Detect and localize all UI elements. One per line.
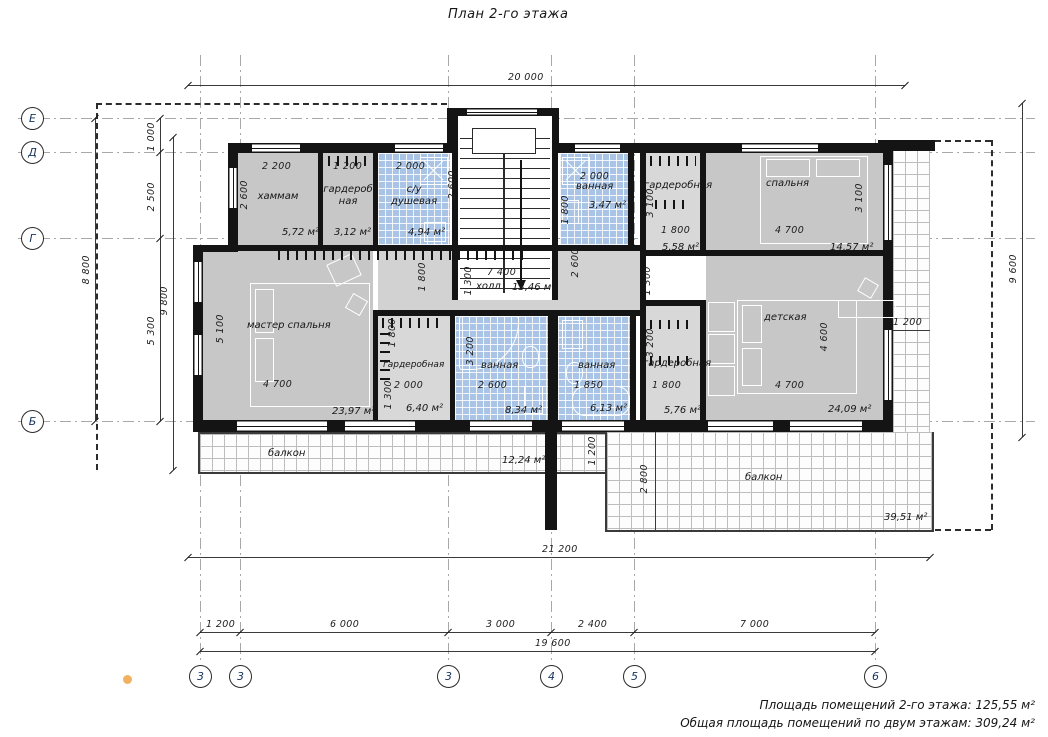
summary-floor2: Площадь помещений 2-го этажа: 125,55 м² — [680, 696, 1035, 714]
overhang-outline — [96, 103, 98, 470]
wall — [552, 112, 558, 300]
room-label: балкон — [268, 448, 305, 460]
wardrobe-rail — [650, 156, 696, 166]
pillow — [742, 348, 762, 386]
dimension-line — [893, 330, 930, 331]
axis-bubble-bottom: 6 — [864, 665, 887, 688]
cabinet — [708, 366, 735, 396]
window — [193, 262, 203, 302]
room-label: ванная — [576, 181, 613, 193]
room-area: 39,51 м² — [884, 513, 927, 523]
room-area: 8,34 м² — [505, 406, 542, 416]
window — [883, 330, 893, 400]
wall — [452, 112, 458, 300]
dimension-line — [173, 137, 174, 470]
room-label: гардеробная — [643, 358, 711, 370]
dim-label: 2 000 — [580, 172, 609, 182]
dimension-line — [200, 651, 875, 652]
dim-label: 9 600 — [1009, 254, 1019, 283]
room-area: 24,09 м² — [828, 405, 871, 415]
axis-bubble-left: Е — [21, 107, 44, 130]
dim-label: 20 000 — [508, 73, 544, 83]
dim-label: 9 800 — [160, 286, 170, 315]
axis-bubble-bottom: 5 — [623, 665, 646, 688]
dim-label: 2 200 — [262, 162, 291, 172]
summary-total: Общая площадь помещений по двум этажам: … — [680, 714, 1035, 732]
axis-bubble-left: Г — [21, 227, 44, 250]
overhang-outline — [935, 140, 991, 142]
dim-label: 3 100 — [646, 188, 656, 217]
wall — [640, 300, 706, 306]
dim-label: 1 300 — [643, 266, 653, 295]
window — [395, 143, 443, 153]
dim-label: 7 000 — [740, 620, 769, 630]
area-summary: Площадь помещений 2-го этажа: 125,55 м² … — [680, 696, 1035, 732]
room-area: 6,13 м² — [590, 404, 627, 414]
dim-label: 1 800 — [652, 381, 681, 391]
terrace-strip-right — [893, 150, 930, 432]
wall — [450, 310, 455, 422]
wall — [630, 310, 636, 422]
axis-bubble-left: Б — [21, 410, 44, 433]
dim-label: 2 600 — [571, 248, 581, 277]
axis-bubble-bottom: 3 — [437, 665, 460, 688]
dim-label: 2 600 — [448, 170, 458, 199]
wall — [700, 150, 706, 256]
dim-label: 7 400 — [487, 268, 516, 278]
cabinet — [708, 302, 735, 332]
dim-label: 1 200 — [206, 620, 235, 630]
stair-arrow-line — [520, 160, 522, 280]
room-label: гардероб ная — [322, 184, 374, 207]
wardrobe-rail — [650, 320, 692, 329]
room-area: 12,24 м² — [502, 456, 545, 466]
dim-label: 4 700 — [263, 380, 292, 390]
dim-label: 2 000 — [396, 162, 425, 172]
dim-label: 3 000 — [486, 620, 515, 630]
dim-label: 2 400 — [578, 620, 607, 630]
room-area: 5,72 м² — [282, 228, 319, 238]
room-label: холл — [476, 281, 501, 293]
room-area: 5,58 м² — [662, 243, 699, 253]
wall — [545, 430, 557, 530]
toilet — [522, 346, 539, 368]
wardrobe-rail — [655, 200, 689, 209]
room-label: спальня — [766, 178, 809, 190]
dimension-line — [605, 434, 606, 468]
wall — [628, 153, 634, 250]
room-label: хаммам — [250, 191, 306, 203]
dimension-line — [1022, 103, 1023, 437]
dimension-line — [95, 118, 96, 421]
dim-label: 2 800 — [640, 464, 650, 493]
room-label: балкон — [745, 472, 782, 484]
stair-landing — [472, 128, 536, 154]
floor-plan-canvas: План 2-го этажа — [0, 0, 1048, 737]
window — [742, 143, 818, 153]
window — [883, 165, 893, 240]
dim-label: 1 300 — [464, 266, 474, 295]
wall — [548, 310, 558, 422]
dimension-line — [200, 632, 875, 633]
axis-bubble-bottom: 4 — [540, 665, 563, 688]
room-label: с/у душевая — [386, 184, 442, 207]
room-label: ванная — [481, 360, 518, 372]
cabinet — [708, 334, 735, 364]
window — [228, 168, 238, 208]
overhang-outline — [96, 103, 447, 105]
dim-label: 4 700 — [775, 226, 804, 236]
dim-label: 4 700 — [775, 381, 804, 391]
window — [575, 143, 620, 153]
dimension-line — [188, 85, 905, 86]
wardrobe-rail — [278, 249, 528, 260]
dim-label: 1 000 — [147, 122, 157, 151]
dim-label: 1 800 — [418, 262, 428, 291]
window — [562, 420, 624, 432]
room-area: 3,47 м² — [589, 201, 626, 211]
room-area: 3,12 м² — [334, 228, 371, 238]
dim-label: 1 850 — [574, 381, 603, 391]
window — [708, 420, 773, 432]
desk — [838, 300, 896, 318]
dim-label: 2 600 — [478, 381, 507, 391]
axis-bubble-bottom: 3 — [229, 665, 252, 688]
dim-label: 2 500 — [147, 182, 157, 211]
dim-label: 1 800 — [661, 226, 690, 236]
dim-label: 5 100 — [216, 314, 226, 343]
dim-label: 3 200 — [466, 336, 476, 365]
axis-bubble-left: Д — [21, 141, 44, 164]
dim-label: 2 600 — [240, 180, 250, 209]
dim-label: 3 100 — [855, 183, 865, 212]
dim-label: 4 600 — [820, 322, 830, 351]
overhang-outline — [991, 140, 993, 530]
dim-label: 6 000 — [330, 620, 359, 630]
window — [237, 420, 327, 432]
sink — [562, 320, 583, 349]
room-area: 4,94 м² — [408, 228, 445, 238]
dim-label: 3 200 — [646, 328, 656, 357]
pillow — [255, 338, 274, 382]
dim-label: 1 200 — [588, 436, 598, 465]
room-label: мастер спальня — [247, 320, 331, 332]
dim-label: 1 300 — [384, 380, 394, 409]
dim-label: 1 200 — [333, 162, 362, 172]
dimension-line — [655, 432, 656, 530]
pillow — [766, 159, 810, 177]
room-area: 14,57 м² — [830, 243, 873, 253]
dim-label: 21 200 — [542, 545, 578, 555]
orange-dot — [123, 675, 132, 684]
window — [345, 420, 415, 432]
window — [252, 143, 300, 153]
dimension-line — [188, 557, 930, 558]
dim-label: 5 300 — [147, 316, 157, 345]
window — [467, 108, 537, 116]
window — [470, 420, 532, 432]
room-area: 23,97 м² — [332, 407, 375, 417]
room-label: ванная — [578, 360, 615, 372]
room-area: 6,40 м² — [406, 404, 443, 414]
window — [193, 335, 203, 375]
axis-bubble-bottom: 3 — [189, 665, 212, 688]
window — [790, 420, 862, 432]
dim-label: 1 800 — [388, 318, 398, 347]
wall — [878, 140, 935, 151]
dim-label: 19 600 — [535, 639, 571, 649]
room-label: детская — [764, 312, 807, 324]
dim-label: 8 800 — [82, 255, 92, 284]
pillow — [816, 159, 860, 177]
dim-label: 1 200 — [893, 318, 922, 328]
room-area: 13,46 м² — [512, 283, 555, 293]
page-title: План 2-го этажа — [448, 8, 568, 21]
room-area: 5,76 м² — [664, 406, 701, 416]
pillow — [742, 305, 762, 343]
dim-label: 2 000 — [394, 381, 423, 391]
room-label: гардеробная — [383, 360, 444, 370]
dim-label: 1 800 — [561, 195, 571, 224]
dimension-line — [160, 118, 161, 421]
